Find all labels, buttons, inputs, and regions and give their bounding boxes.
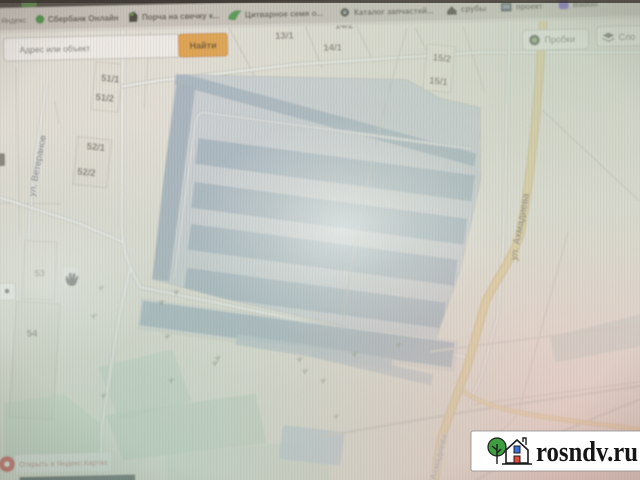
svg-text:rosndv.ru: rosndv.ru <box>536 437 638 468</box>
